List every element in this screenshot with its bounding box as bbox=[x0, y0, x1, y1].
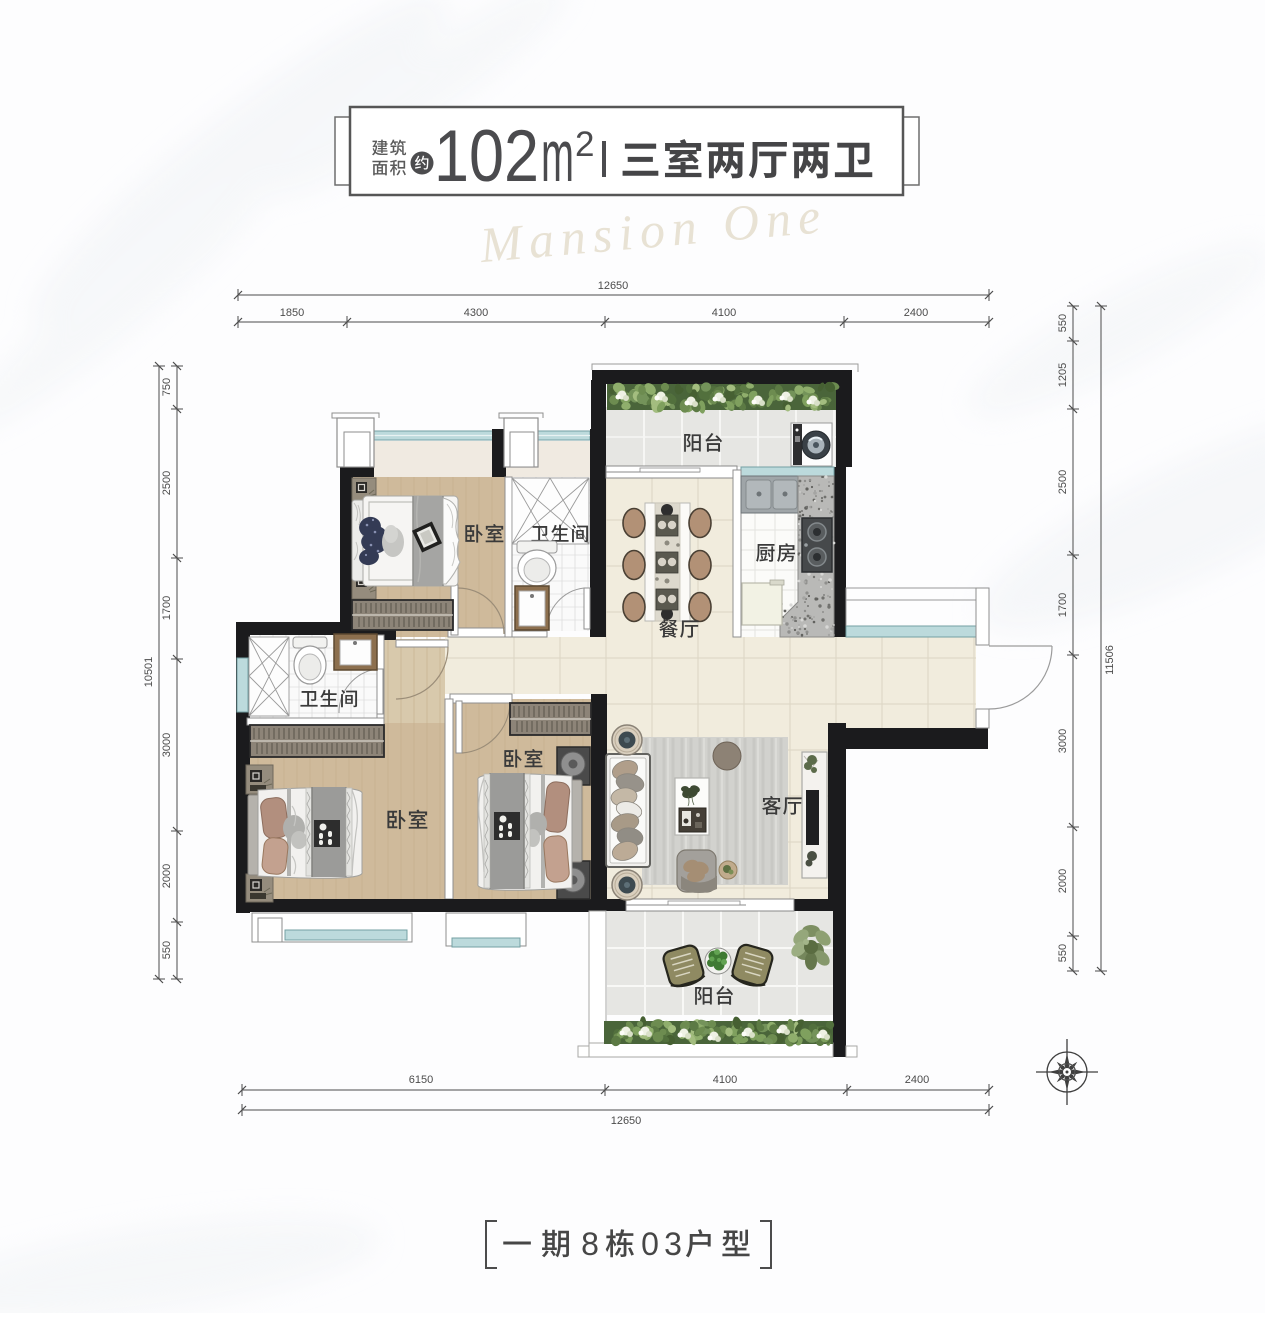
svg-text:2500: 2500 bbox=[161, 471, 173, 495]
svg-text:2: 2 bbox=[575, 125, 594, 164]
svg-text:4100: 4100 bbox=[713, 1074, 737, 1086]
svg-text:550: 550 bbox=[1057, 944, 1069, 962]
svg-text:2000: 2000 bbox=[1057, 869, 1069, 893]
svg-text:2400: 2400 bbox=[904, 307, 928, 319]
svg-text:0: 0 bbox=[641, 1226, 659, 1262]
svg-text:1700: 1700 bbox=[161, 596, 173, 620]
svg-text:3: 3 bbox=[664, 1226, 682, 1262]
svg-text:12650: 12650 bbox=[611, 1115, 642, 1127]
svg-text:2400: 2400 bbox=[905, 1074, 929, 1086]
svg-text:12650: 12650 bbox=[598, 280, 629, 292]
svg-text:3000: 3000 bbox=[1057, 729, 1069, 753]
svg-text:4300: 4300 bbox=[464, 307, 488, 319]
svg-text:1850: 1850 bbox=[280, 307, 304, 319]
svg-text:102: 102 bbox=[434, 116, 539, 197]
svg-text:4100: 4100 bbox=[712, 307, 736, 319]
svg-text:6150: 6150 bbox=[409, 1074, 433, 1086]
svg-text:2500: 2500 bbox=[1057, 470, 1069, 494]
svg-text:10501: 10501 bbox=[143, 657, 155, 688]
svg-text:550: 550 bbox=[1057, 314, 1069, 332]
svg-text:3000: 3000 bbox=[161, 733, 173, 757]
svg-text:2000: 2000 bbox=[161, 864, 173, 888]
svg-text:m: m bbox=[541, 116, 574, 197]
svg-text:550: 550 bbox=[161, 941, 173, 959]
svg-text:750: 750 bbox=[161, 378, 173, 396]
svg-text:1205: 1205 bbox=[1057, 363, 1069, 387]
svg-text:11506: 11506 bbox=[1104, 645, 1116, 675]
svg-text:8: 8 bbox=[581, 1226, 599, 1262]
svg-text:1700: 1700 bbox=[1057, 593, 1069, 617]
